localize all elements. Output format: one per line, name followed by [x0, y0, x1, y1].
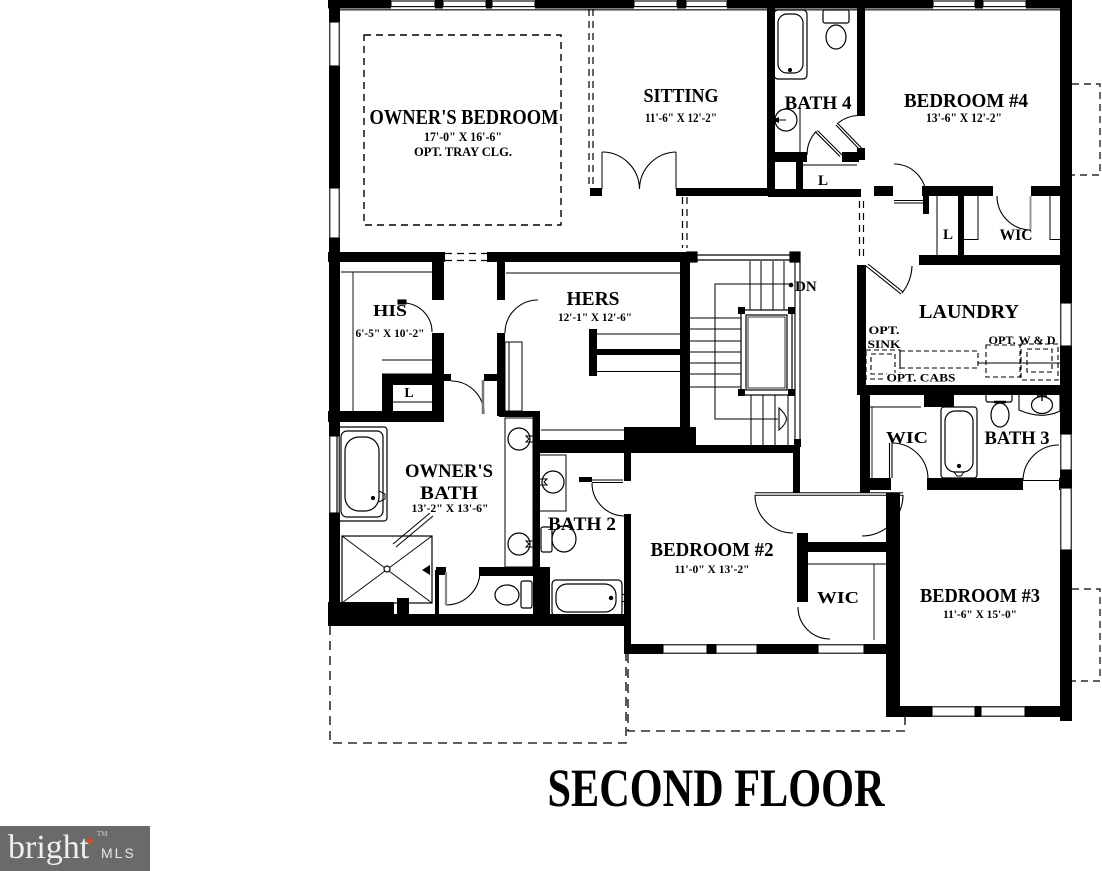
svg-text:L: L	[818, 173, 828, 189]
svg-text:BEDROOM #4: BEDROOM #4	[904, 90, 1028, 112]
svg-text:6'-5" X 10'-2": 6'-5" X 10'-2"	[356, 326, 425, 340]
svg-text:OWNER'S BEDROOM: OWNER'S BEDROOM	[370, 105, 559, 129]
svg-text:SECOND FLOOR: SECOND FLOOR	[548, 758, 886, 818]
svg-text:BATH 2: BATH 2	[548, 514, 616, 535]
svg-text:11'-6" X 15'-0": 11'-6" X 15'-0"	[943, 607, 1017, 621]
svg-text:12'-1" X 12'-6": 12'-1" X 12'-6"	[558, 310, 632, 324]
svg-text:OPT. W & D: OPT. W & D	[989, 335, 1056, 347]
svg-text:BEDROOM #3: BEDROOM #3	[920, 585, 1040, 607]
svg-text:L: L	[943, 227, 953, 243]
svg-text:HERS: HERS	[567, 288, 620, 310]
svg-text:SINK: SINK	[868, 339, 901, 351]
svg-text:17'-0" X 16'-6": 17'-0" X 16'-6"	[424, 130, 502, 144]
svg-text:OPT. CABS: OPT. CABS	[887, 373, 956, 385]
svg-text:BATH 4: BATH 4	[785, 93, 853, 114]
svg-text:LAUNDRY: LAUNDRY	[919, 301, 1020, 323]
svg-text:bright: bright	[8, 829, 90, 866]
svg-text:WIC: WIC	[817, 588, 859, 607]
svg-text:MLS: MLS	[101, 845, 136, 861]
svg-text:OWNER'S: OWNER'S	[405, 461, 493, 482]
svg-text:BATH 3: BATH 3	[985, 428, 1050, 449]
svg-text:DN: DN	[795, 279, 817, 295]
svg-text:13'-2" X 13'-6": 13'-2" X 13'-6"	[412, 501, 489, 515]
svg-text:BEDROOM #2: BEDROOM #2	[651, 539, 774, 561]
svg-text:OPT. TRAY CLG.: OPT. TRAY CLG.	[414, 145, 512, 159]
svg-text:13'-6" X 12'-2": 13'-6" X 12'-2"	[926, 111, 1002, 125]
svg-text:TM: TM	[97, 830, 108, 838]
svg-text:L: L	[404, 386, 413, 401]
svg-text:OPT.: OPT.	[869, 325, 900, 337]
svg-text:11'-0" X 13'-2": 11'-0" X 13'-2"	[675, 562, 750, 576]
svg-text:11'-6" X 12'-2": 11'-6" X 12'-2"	[645, 111, 717, 125]
svg-text:SITTING: SITTING	[644, 85, 719, 107]
